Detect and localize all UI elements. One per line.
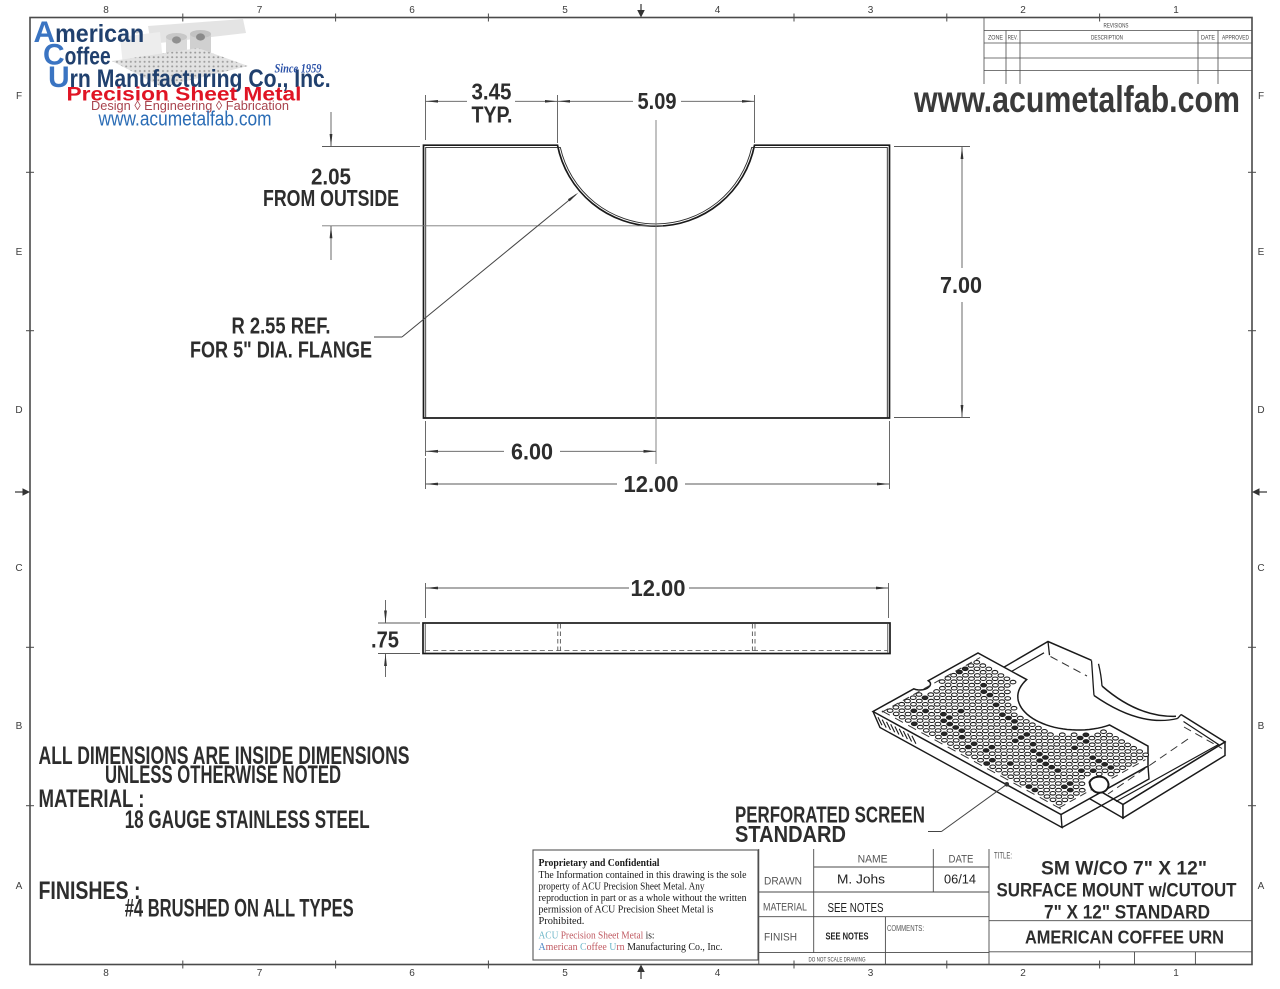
svg-text:F: F (1258, 91, 1264, 102)
svg-text:DO NOT SCALE DRAWING: DO NOT SCALE DRAWING (809, 957, 866, 964)
svg-text:5: 5 (562, 968, 568, 979)
svg-text:.75: .75 (371, 626, 399, 652)
svg-text:The Information contained in t: The Information contained in this drawin… (539, 870, 747, 881)
svg-text:F: F (16, 91, 22, 102)
svg-text:ZONE: ZONE (988, 35, 1004, 42)
svg-text:SEE NOTES: SEE NOTES (828, 901, 884, 915)
svg-text:Proprietary and Confidential: Proprietary and Confidential (539, 858, 660, 869)
svg-text:SEE NOTES: SEE NOTES (826, 931, 869, 943)
svg-text:SM W/CO 7" X 12": SM W/CO 7" X 12" (1041, 858, 1207, 880)
svg-text:FROM OUTSIDE: FROM OUTSIDE (263, 185, 399, 211)
svg-text:AMERICAN COFFEE URN: AMERICAN COFFEE URN (1025, 927, 1224, 948)
svg-text:E: E (16, 247, 23, 258)
svg-text:C: C (1257, 563, 1264, 574)
svg-text:American Coffee Urn Manufactur: American Coffee Urn Manufacturing Co., I… (539, 942, 723, 953)
svg-text:06/14: 06/14 (944, 873, 976, 887)
svg-text:COMMENTS:: COMMENTS: (887, 924, 924, 933)
svg-text:ACU Precision Sheet Metal is:: ACU Precision Sheet Metal is: (539, 931, 655, 942)
svg-text:E: E (1258, 247, 1265, 258)
svg-text:APPROVED: APPROVED (1222, 35, 1249, 42)
svg-text:7: 7 (257, 968, 263, 979)
svg-text:7: 7 (257, 5, 263, 16)
svg-text:D: D (15, 405, 22, 416)
svg-text:12.00: 12.00 (624, 471, 679, 497)
svg-text:18 GAUGE STAINLESS STEEL: 18 GAUGE STAINLESS STEEL (125, 806, 370, 834)
svg-text:8: 8 (103, 5, 109, 16)
svg-text:7.00: 7.00 (940, 272, 982, 298)
svg-text:4: 4 (715, 5, 721, 16)
svg-text:DATE: DATE (1201, 35, 1216, 42)
svg-text:1: 1 (1173, 5, 1179, 16)
svg-text:permission of ACU Precision Sh: permission of ACU Precision Sheet Metal … (539, 905, 714, 916)
svg-text:R 2.55 REF.: R 2.55 REF. (232, 313, 331, 339)
svg-text:TITLE:: TITLE: (994, 851, 1012, 861)
svg-text:8: 8 (103, 968, 109, 979)
svg-text:NAME: NAME (858, 854, 888, 866)
svg-text:1: 1 (1173, 968, 1179, 979)
svg-text:C: C (15, 563, 22, 574)
svg-text:D: D (1257, 405, 1264, 416)
svg-text:Prohibited.: Prohibited. (539, 916, 585, 927)
svg-text:12.00: 12.00 (631, 575, 686, 601)
svg-text:STANDARD: STANDARD (735, 821, 846, 847)
svg-text:www.acumetalfab.com: www.acumetalfab.com (98, 108, 272, 131)
svg-text:www.acumetalfab.com: www.acumetalfab.com (913, 79, 1240, 120)
svg-text:REVISIONS: REVISIONS (1104, 23, 1129, 30)
svg-text:B: B (1258, 721, 1265, 732)
svg-text:FINISH: FINISH (764, 932, 797, 944)
svg-text:DRAWN: DRAWN (764, 876, 802, 888)
svg-text:SURFACE MOUNT w/CUTOUT: SURFACE MOUNT w/CUTOUT (997, 880, 1237, 902)
svg-text:A: A (1258, 881, 1265, 892)
svg-text:6: 6 (409, 5, 415, 16)
svg-text:M. Johs: M. Johs (837, 873, 885, 887)
svg-text:DESCRIPTION: DESCRIPTION (1091, 35, 1123, 42)
svg-text:6: 6 (409, 968, 415, 979)
svg-text:REV.: REV. (1008, 35, 1018, 42)
svg-text:property of ACU Precision Shee: property of ACU Precision Sheet Metal. A… (539, 882, 706, 893)
svg-text:DATE: DATE (949, 854, 974, 866)
svg-text:Since 1959: Since 1959 (275, 62, 323, 76)
svg-text:A: A (16, 881, 23, 892)
svg-text:6.00: 6.00 (511, 438, 553, 464)
svg-text:3: 3 (868, 968, 874, 979)
svg-text:4: 4 (715, 968, 721, 979)
svg-text:5.09: 5.09 (638, 88, 677, 114)
svg-text:B: B (16, 721, 23, 732)
svg-text:reproduction in part or as a w: reproduction in part or as a whole witho… (539, 893, 748, 904)
svg-text:TYP.: TYP. (472, 101, 513, 127)
svg-text:3: 3 (868, 5, 874, 16)
svg-text:#4 BRUSHED ON ALL TYPES: #4 BRUSHED ON ALL TYPES (125, 895, 354, 923)
svg-text:5: 5 (562, 5, 568, 16)
svg-text:FOR 5" DIA. FLANGE: FOR 5" DIA. FLANGE (190, 337, 372, 363)
svg-text:MATERIAL: MATERIAL (763, 902, 807, 914)
svg-text:2: 2 (1020, 5, 1026, 16)
svg-text:7" X 12" STANDARD: 7" X 12" STANDARD (1044, 902, 1210, 924)
svg-text:2: 2 (1020, 968, 1026, 979)
